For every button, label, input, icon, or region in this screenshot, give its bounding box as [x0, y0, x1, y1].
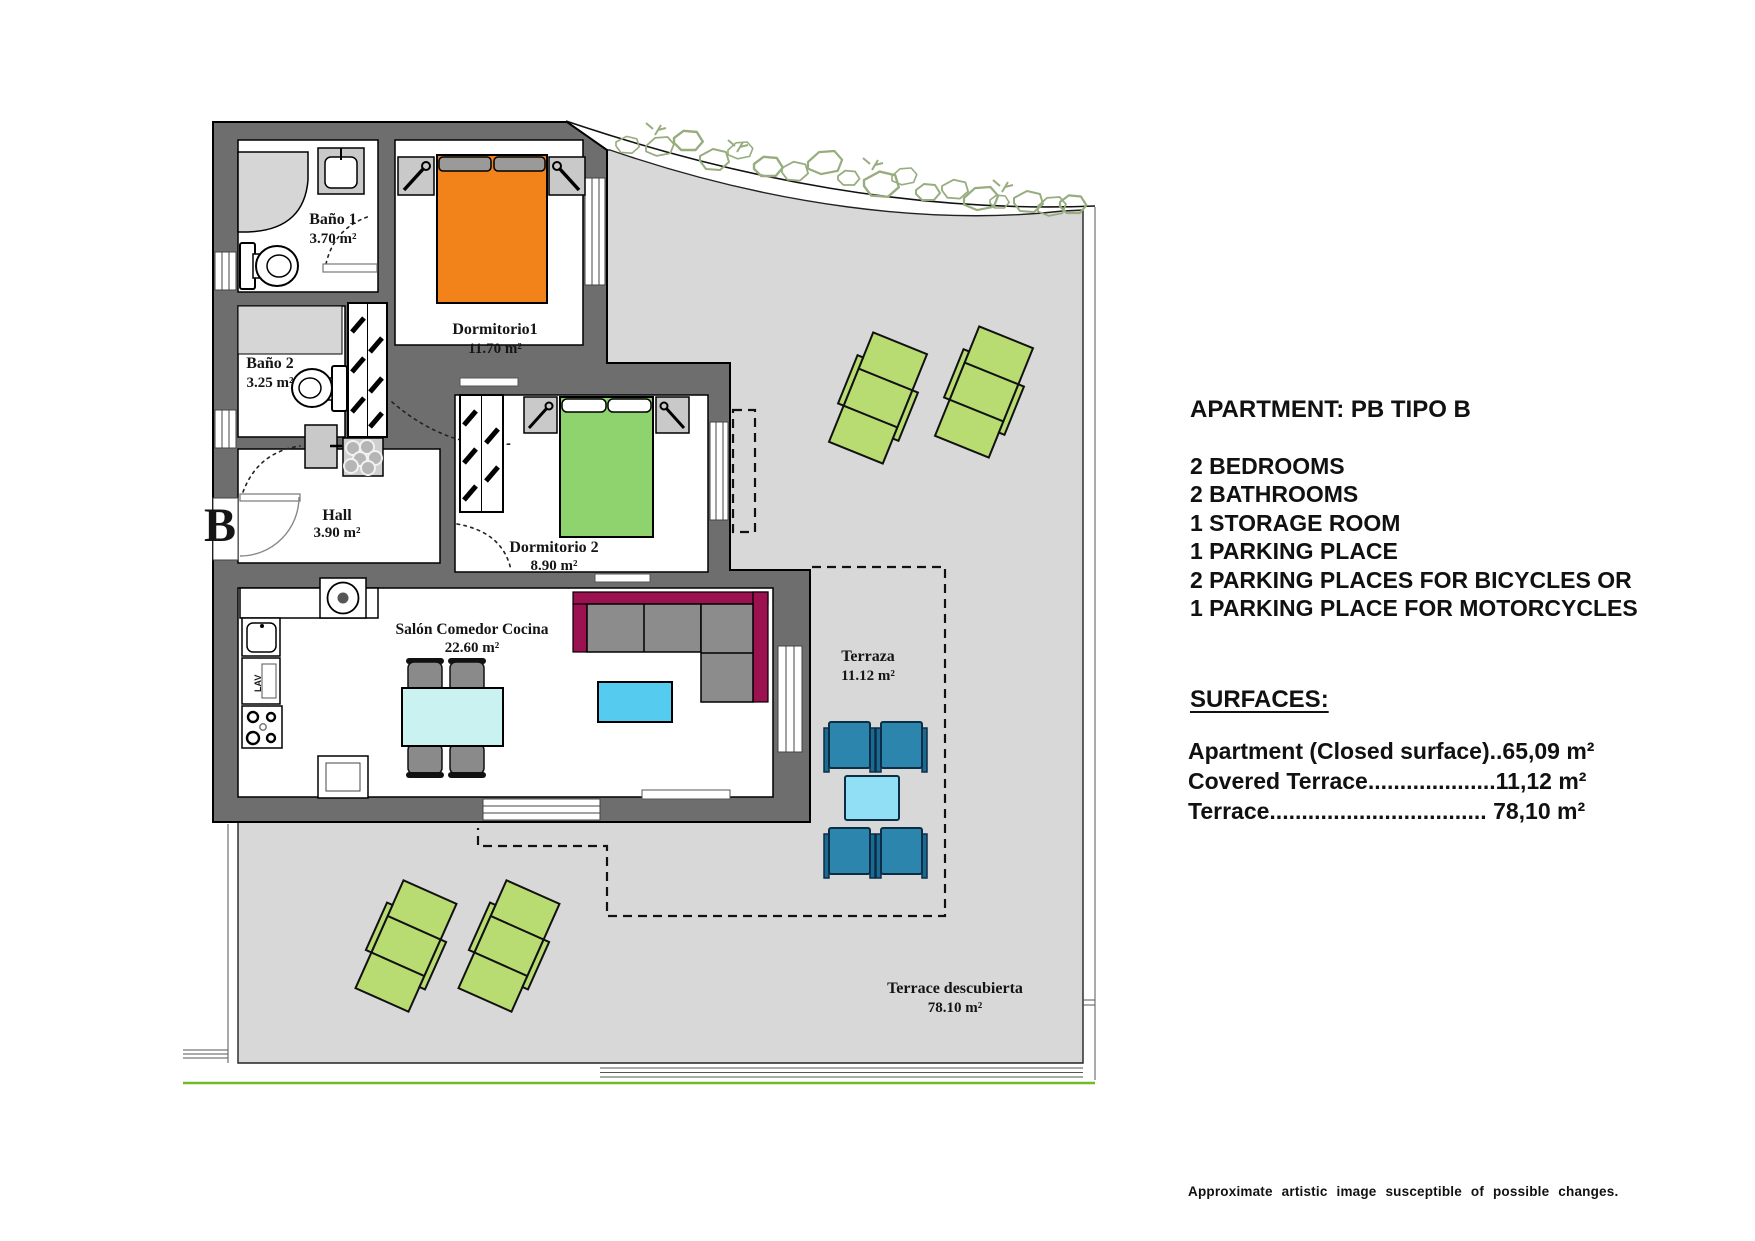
room-area: 78.10 m² [928, 1000, 983, 1016]
room-label: Terraza [841, 648, 895, 665]
floor-plan-svg: LAV [180, 95, 1100, 1095]
room-label: Dormitorio 2 [509, 539, 598, 556]
door-leaf [323, 264, 377, 272]
room-area: 11.70 m² [468, 341, 522, 357]
feature-item: 1 PARKING PLACE FOR MOTORCYCLES [1190, 594, 1638, 622]
room-hall [238, 449, 440, 563]
hall-closet [348, 303, 387, 437]
chair-back [406, 772, 444, 778]
room-area: 3.90 m² [314, 525, 361, 541]
surface-line: Terrace.................................… [1188, 796, 1594, 826]
double-bed-orange [437, 155, 547, 303]
window-sill [595, 574, 650, 582]
room-label: Dormitorio1 [452, 321, 537, 338]
dining-chair [408, 744, 442, 774]
feature-item: 2 BATHROOMS [1190, 480, 1638, 508]
stove [242, 706, 282, 748]
surface-line: Apartment (Closed surface)..65,09 m² [1188, 736, 1594, 766]
surfaces-heading: SURFACES: [1190, 686, 1329, 714]
bathroom-sink [318, 148, 364, 194]
floor-plan-page: LAV [0, 0, 1755, 1241]
toilet [240, 243, 298, 289]
dining-table [402, 688, 503, 746]
double-bed-green [560, 397, 653, 537]
toilet [292, 366, 347, 411]
terrace-chair [876, 828, 927, 878]
feature-item: 1 PARKING PLACE [1190, 537, 1638, 565]
room-label: Salón Comedor Cocina [395, 621, 548, 638]
pillow [439, 157, 491, 171]
terrace-chair [876, 722, 927, 772]
dishwasher-label: LAV [253, 675, 263, 692]
room-label: Hall [322, 507, 352, 524]
dishwasher: LAV [242, 658, 280, 704]
kitchen-peninsula [318, 756, 368, 798]
footer-disclaimer: Approximate artistic image susceptible o… [1188, 1184, 1618, 1199]
apartment-title: APARTMENT: PB TIPO B [1190, 396, 1471, 424]
wardrobe [460, 395, 503, 512]
door-leaf [240, 494, 300, 501]
room-area: 11.12 m² [841, 668, 895, 684]
surfaces-list: Apartment (Closed surface)..65,09 m² Cov… [1188, 736, 1594, 826]
sliding-door-leaf [642, 790, 730, 799]
terrace-chair [824, 722, 875, 772]
room-area: 3.25 m² [247, 375, 294, 391]
coffee-table [598, 682, 672, 722]
dining-chair [450, 744, 484, 774]
unit-letter: B [204, 499, 236, 552]
terrace-table [845, 776, 899, 820]
room-label: Baño 2 [246, 355, 294, 372]
pillow [608, 399, 651, 412]
shower-tray [238, 306, 342, 354]
storage-pebble-floor [343, 438, 383, 476]
pillow [562, 399, 606, 412]
room-area: 22.60 m² [445, 640, 500, 656]
room-label: Baño 1 [309, 211, 357, 228]
feature-list: 2 BEDROOMS 2 BATHROOMS 1 STORAGE ROOM 1 … [1190, 452, 1638, 622]
chair-back [448, 772, 486, 778]
feature-item: 1 STORAGE ROOM [1190, 509, 1638, 537]
room-area: 8.90 m² [531, 558, 578, 574]
kitchen-sink [242, 618, 280, 656]
window-sill [460, 378, 518, 386]
room-label: Terrace descubierta [887, 980, 1023, 997]
feature-item: 2 PARKING PLACES FOR BICYCLES OR [1190, 566, 1638, 594]
pillow [494, 157, 545, 171]
washing-machine [320, 578, 366, 618]
room-area: 3.70 m² [310, 231, 357, 247]
terrace-chair [824, 828, 875, 878]
surface-line: Covered Terrace....................11,12… [1188, 766, 1594, 796]
feature-item: 2 BEDROOMS [1190, 452, 1638, 480]
